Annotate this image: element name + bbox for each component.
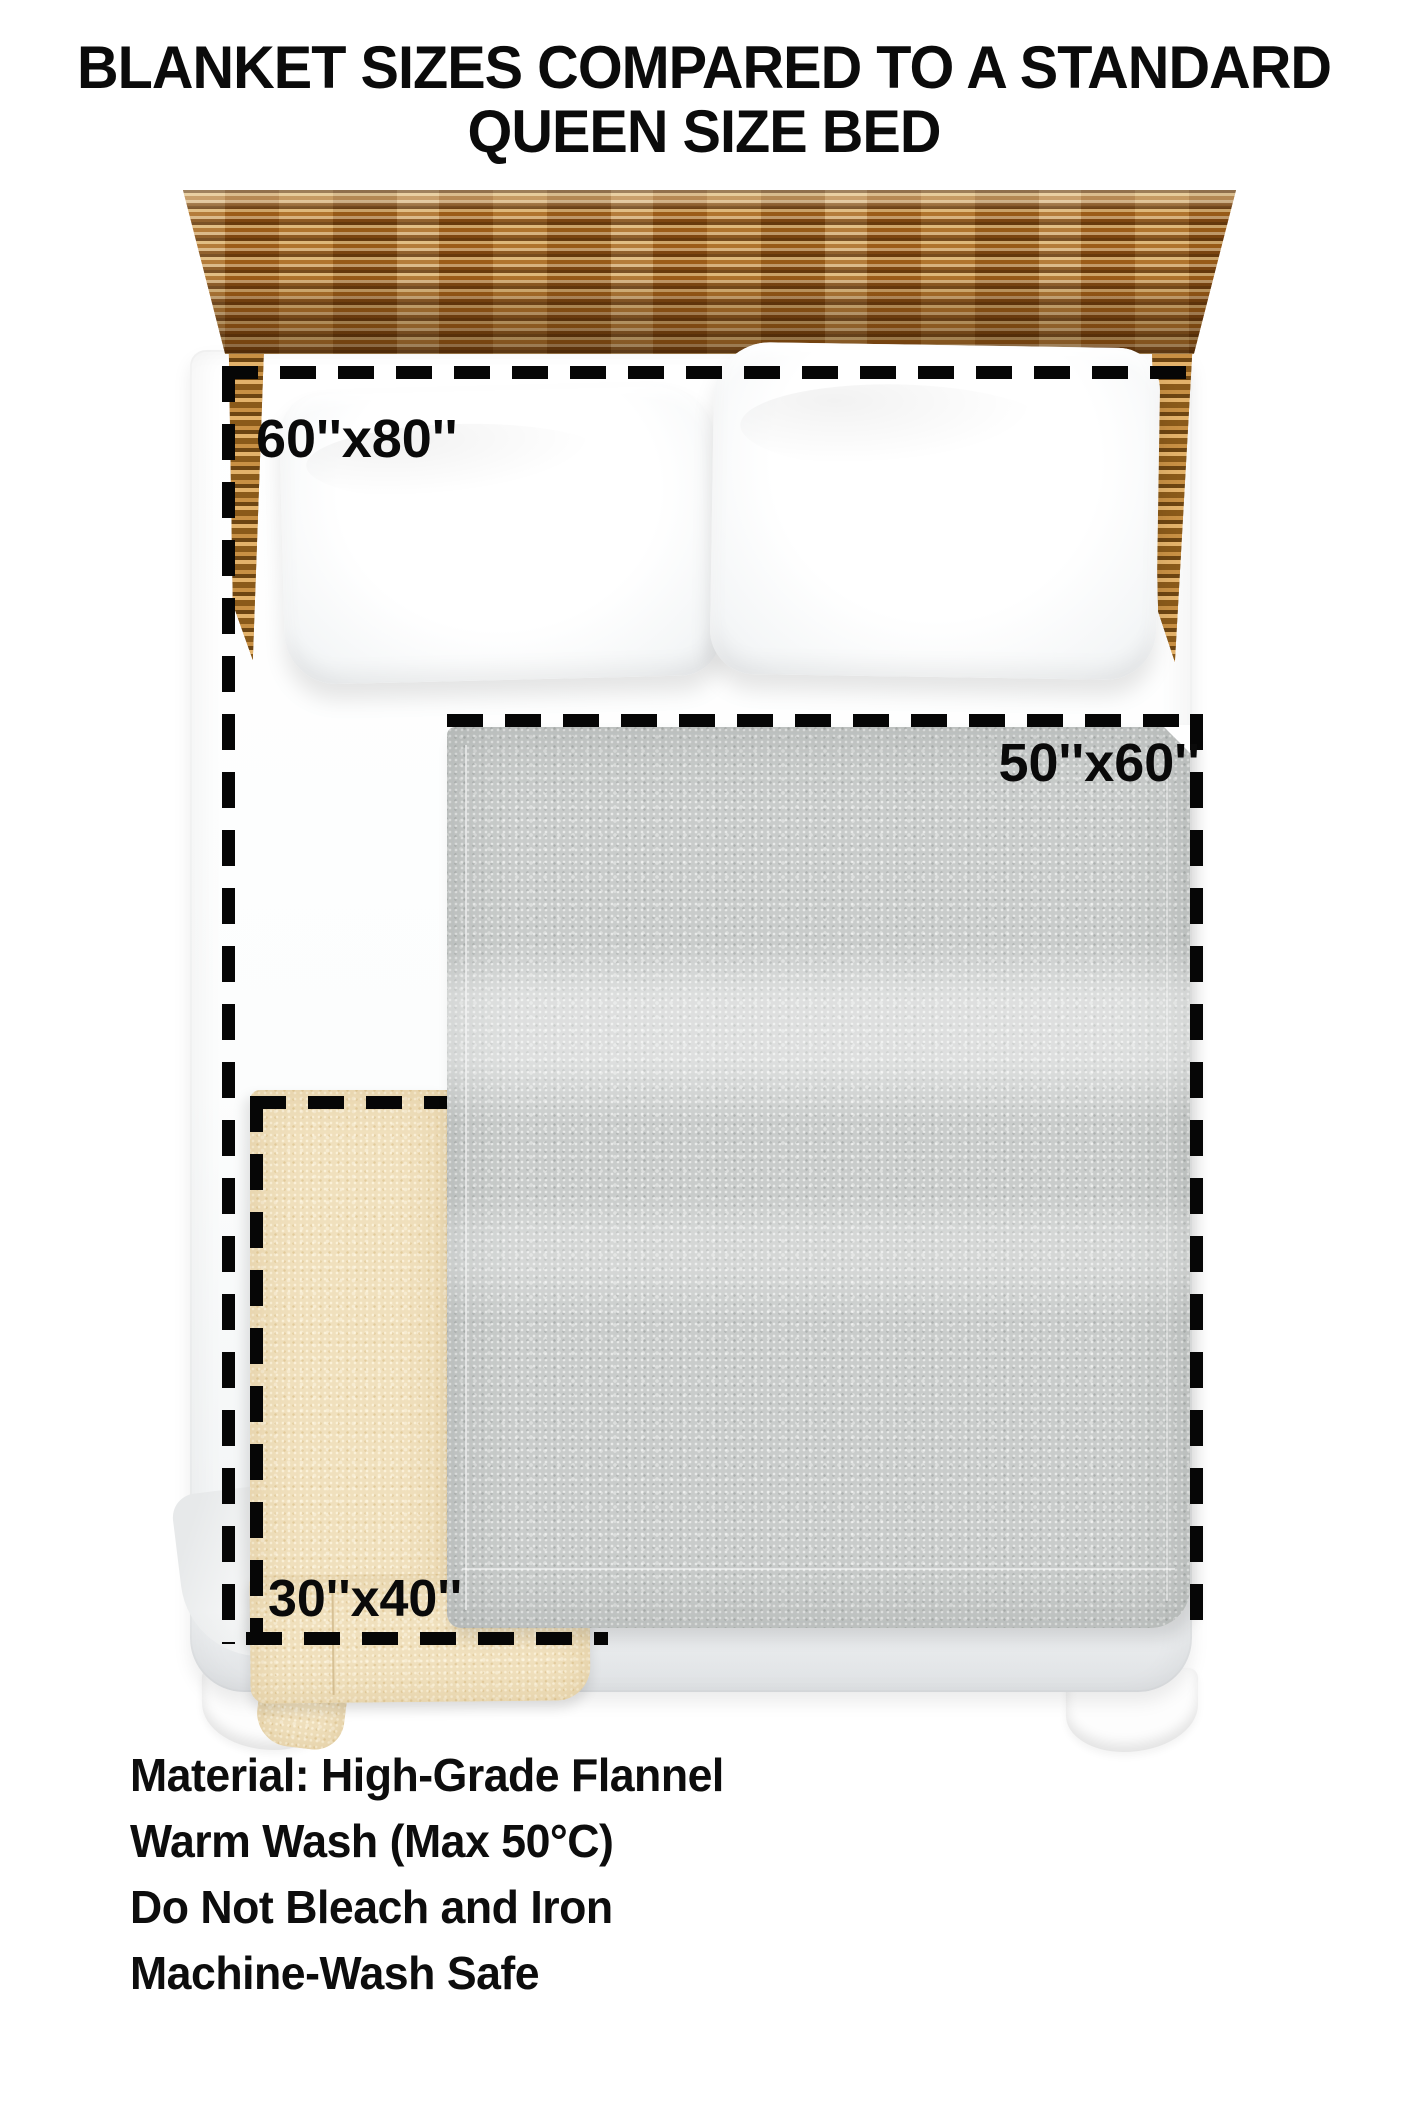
medium-blanket-dash-right: [1190, 714, 1203, 1626]
small-blanket-dash-top: [250, 1096, 448, 1109]
blanket-size-infographic: BLANKET SIZES COMPARED TO A STANDARD QUE…: [0, 0, 1408, 2112]
medium-blanket-seam-bottom: [462, 1568, 1175, 1570]
medium-blanket: [447, 727, 1190, 1628]
medium-blanket-sheen: [447, 727, 1190, 1628]
queen-size-label: 60''x80'': [256, 412, 458, 466]
page-title: BLANKET SIZES COMPARED TO A STANDARD QUE…: [28, 36, 1380, 164]
queen-outline-dash-top: [222, 366, 1194, 379]
medium-blanket-dash-top: [447, 714, 1203, 727]
medium-blanket-seam-right: [1166, 745, 1168, 1601]
care-line-material: Material: High-Grade Flannel: [130, 1742, 724, 1808]
small-blanket-dash-bottom: [246, 1632, 608, 1645]
care-line-wash: Warm Wash (Max 50°C): [130, 1808, 724, 1874]
small-blanket-dash-left: [250, 1096, 263, 1644]
pillow-right: [709, 342, 1160, 681]
small-blanket: [250, 1090, 448, 1642]
queen-outline-dash-left: [222, 366, 235, 1644]
page-title-line1: BLANKET SIZES COMPARED TO A STANDARD: [28, 36, 1380, 100]
care-line-bleach: Do Not Bleach and Iron: [130, 1874, 724, 1940]
care-instructions: Material: High-Grade Flannel Warm Wash (…: [130, 1742, 724, 2006]
medium-blanket-seam-left: [465, 745, 467, 1610]
page-title-line2: QUEEN SIZE BED: [28, 100, 1380, 164]
medium-blanket-size-label: 50''x60'': [950, 736, 1200, 790]
small-blanket-size-label: 30''x40'': [268, 1572, 462, 1626]
care-line-machine: Machine-Wash Safe: [130, 1940, 724, 2006]
headboard: [183, 190, 1236, 354]
